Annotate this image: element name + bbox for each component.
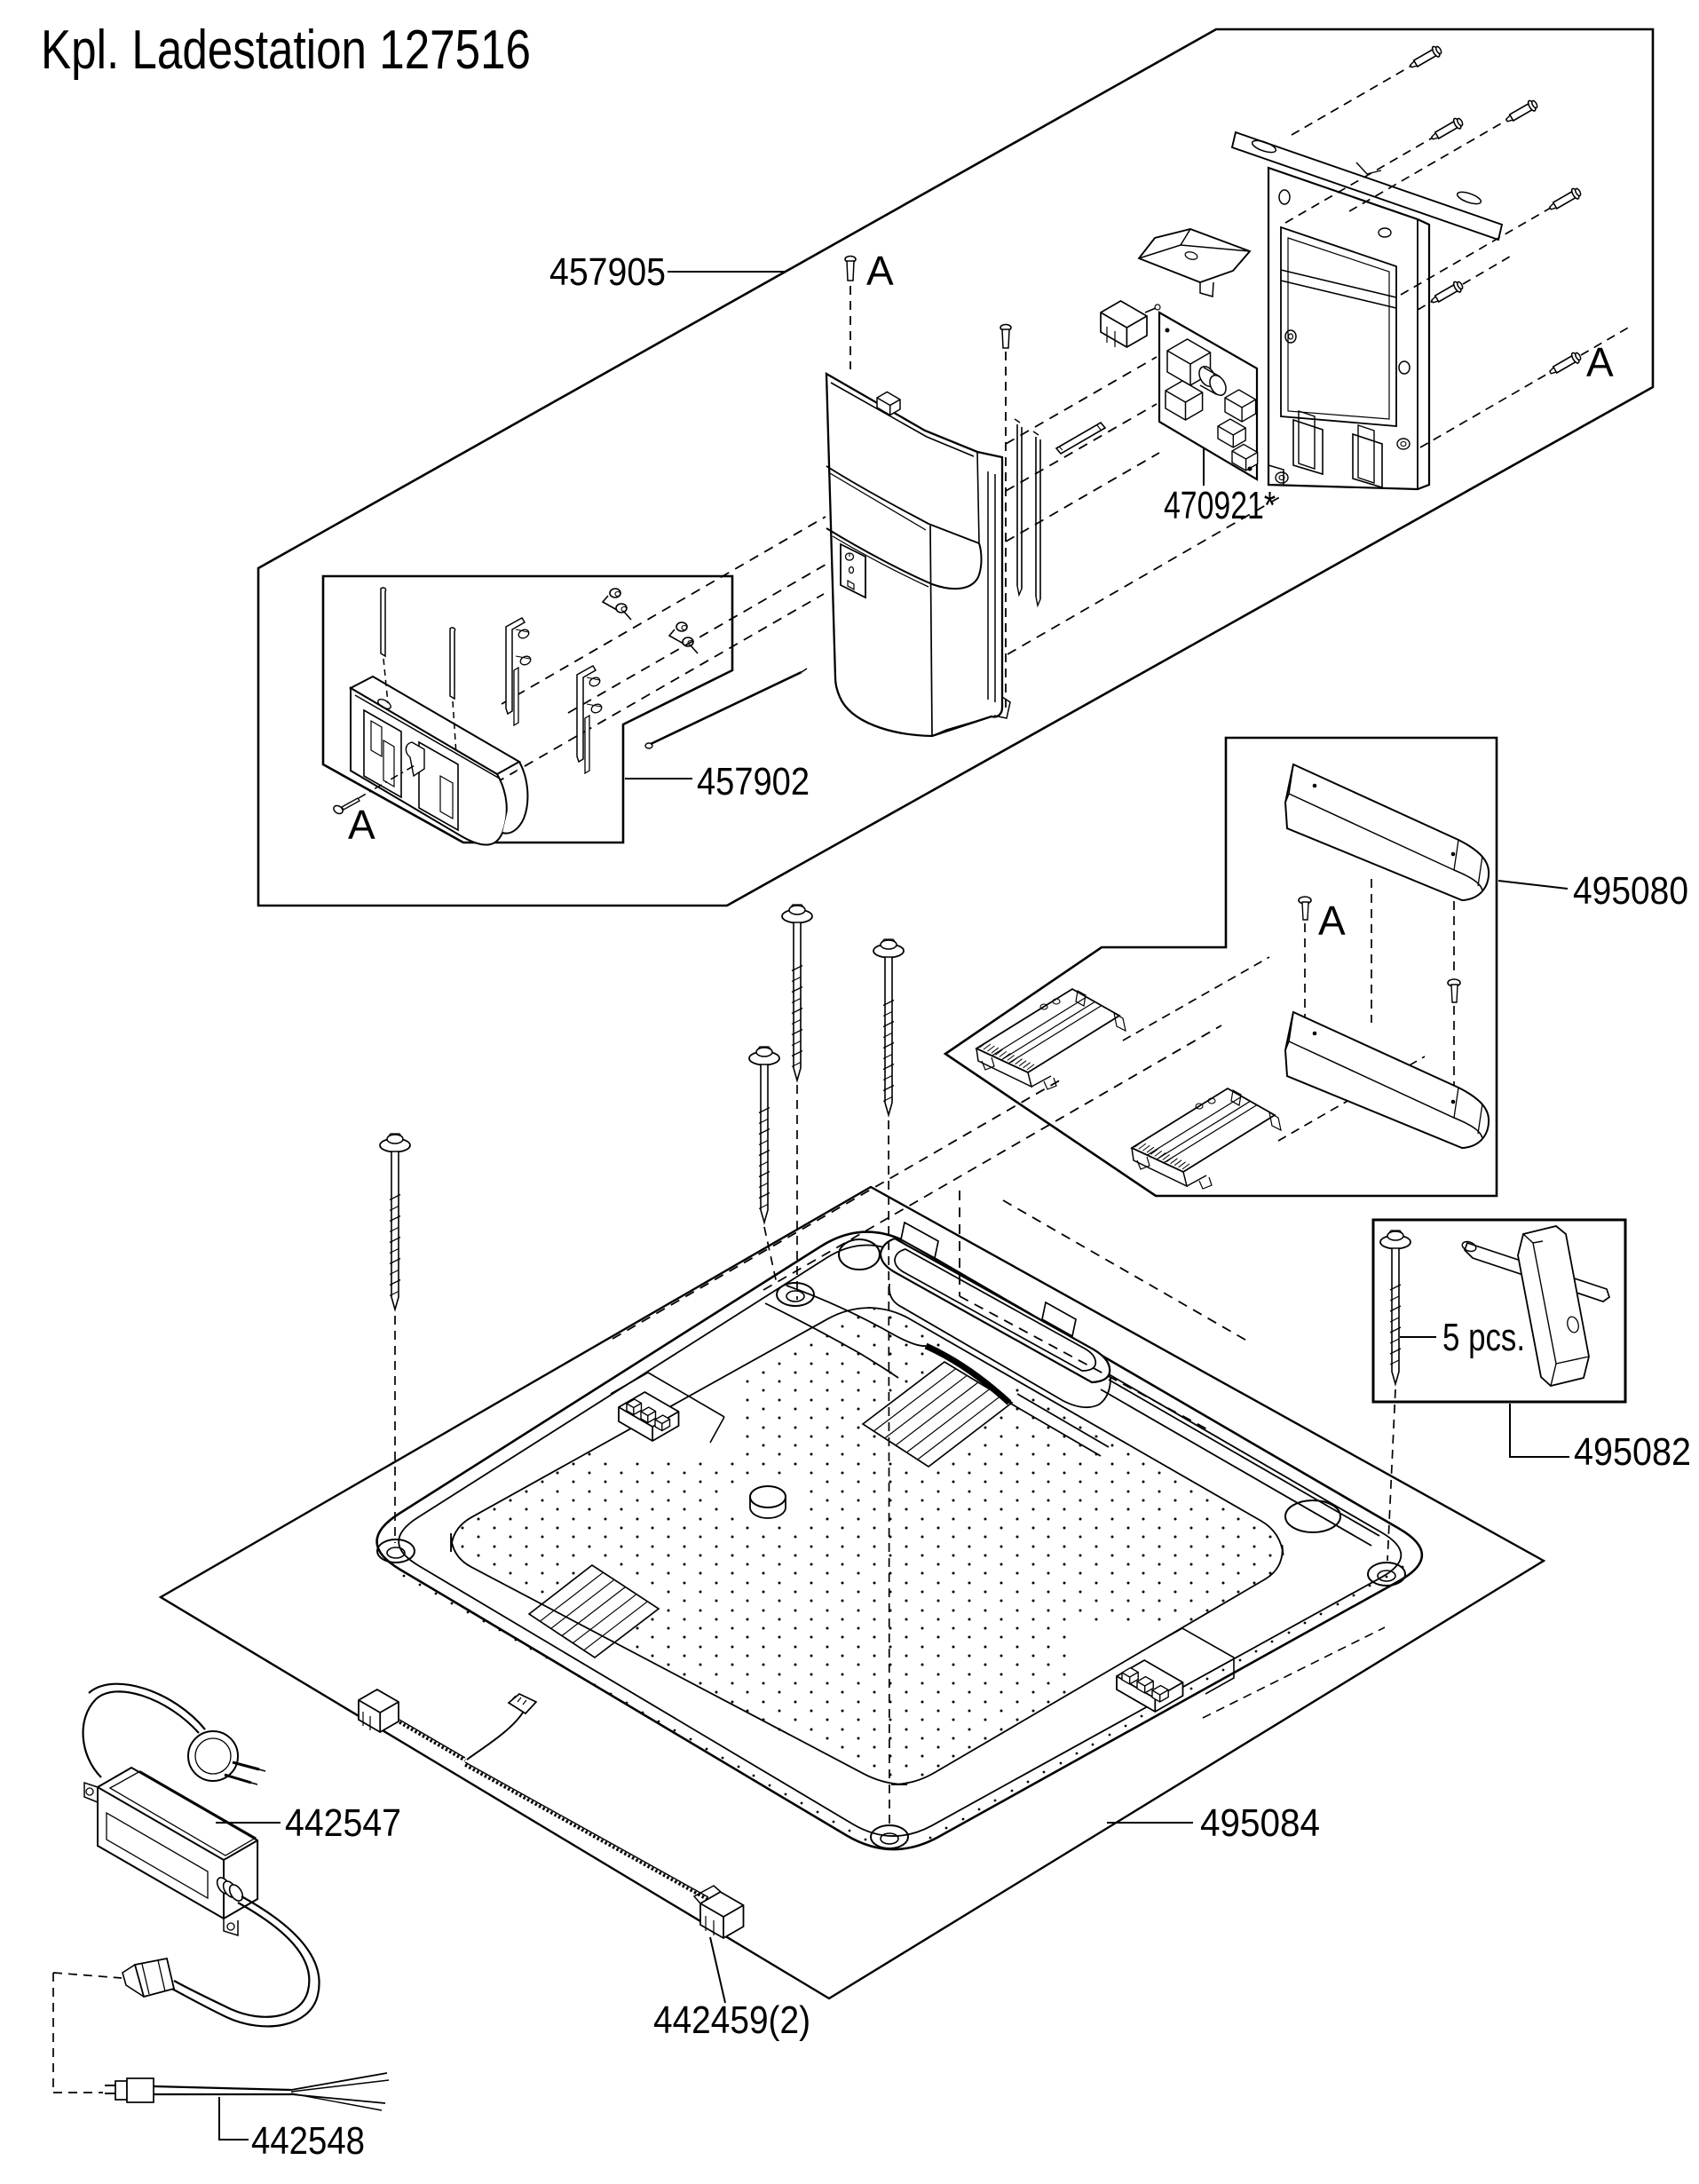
svg-text:495084: 495084	[1200, 1801, 1320, 1845]
svg-text:470921*: 470921*	[1164, 484, 1276, 527]
svg-text:A: A	[348, 802, 375, 848]
svg-text:Kpl. Ladestation 127516: Kpl. Ladestation 127516	[41, 20, 531, 81]
svg-text:A: A	[866, 248, 894, 294]
svg-text:495080: 495080	[1573, 869, 1688, 913]
svg-text:495082: 495082	[1574, 1430, 1691, 1474]
svg-text:5 pcs.: 5 pcs.	[1442, 1316, 1525, 1359]
svg-text:442459(2): 442459(2)	[653, 1998, 810, 2042]
svg-text:442547: 442547	[285, 1801, 401, 1845]
svg-text:442548: 442548	[251, 2119, 365, 2163]
svg-text:A: A	[1586, 339, 1614, 385]
svg-text:457905: 457905	[549, 250, 666, 294]
svg-text:457902: 457902	[697, 760, 810, 803]
svg-text:A: A	[1318, 898, 1346, 944]
